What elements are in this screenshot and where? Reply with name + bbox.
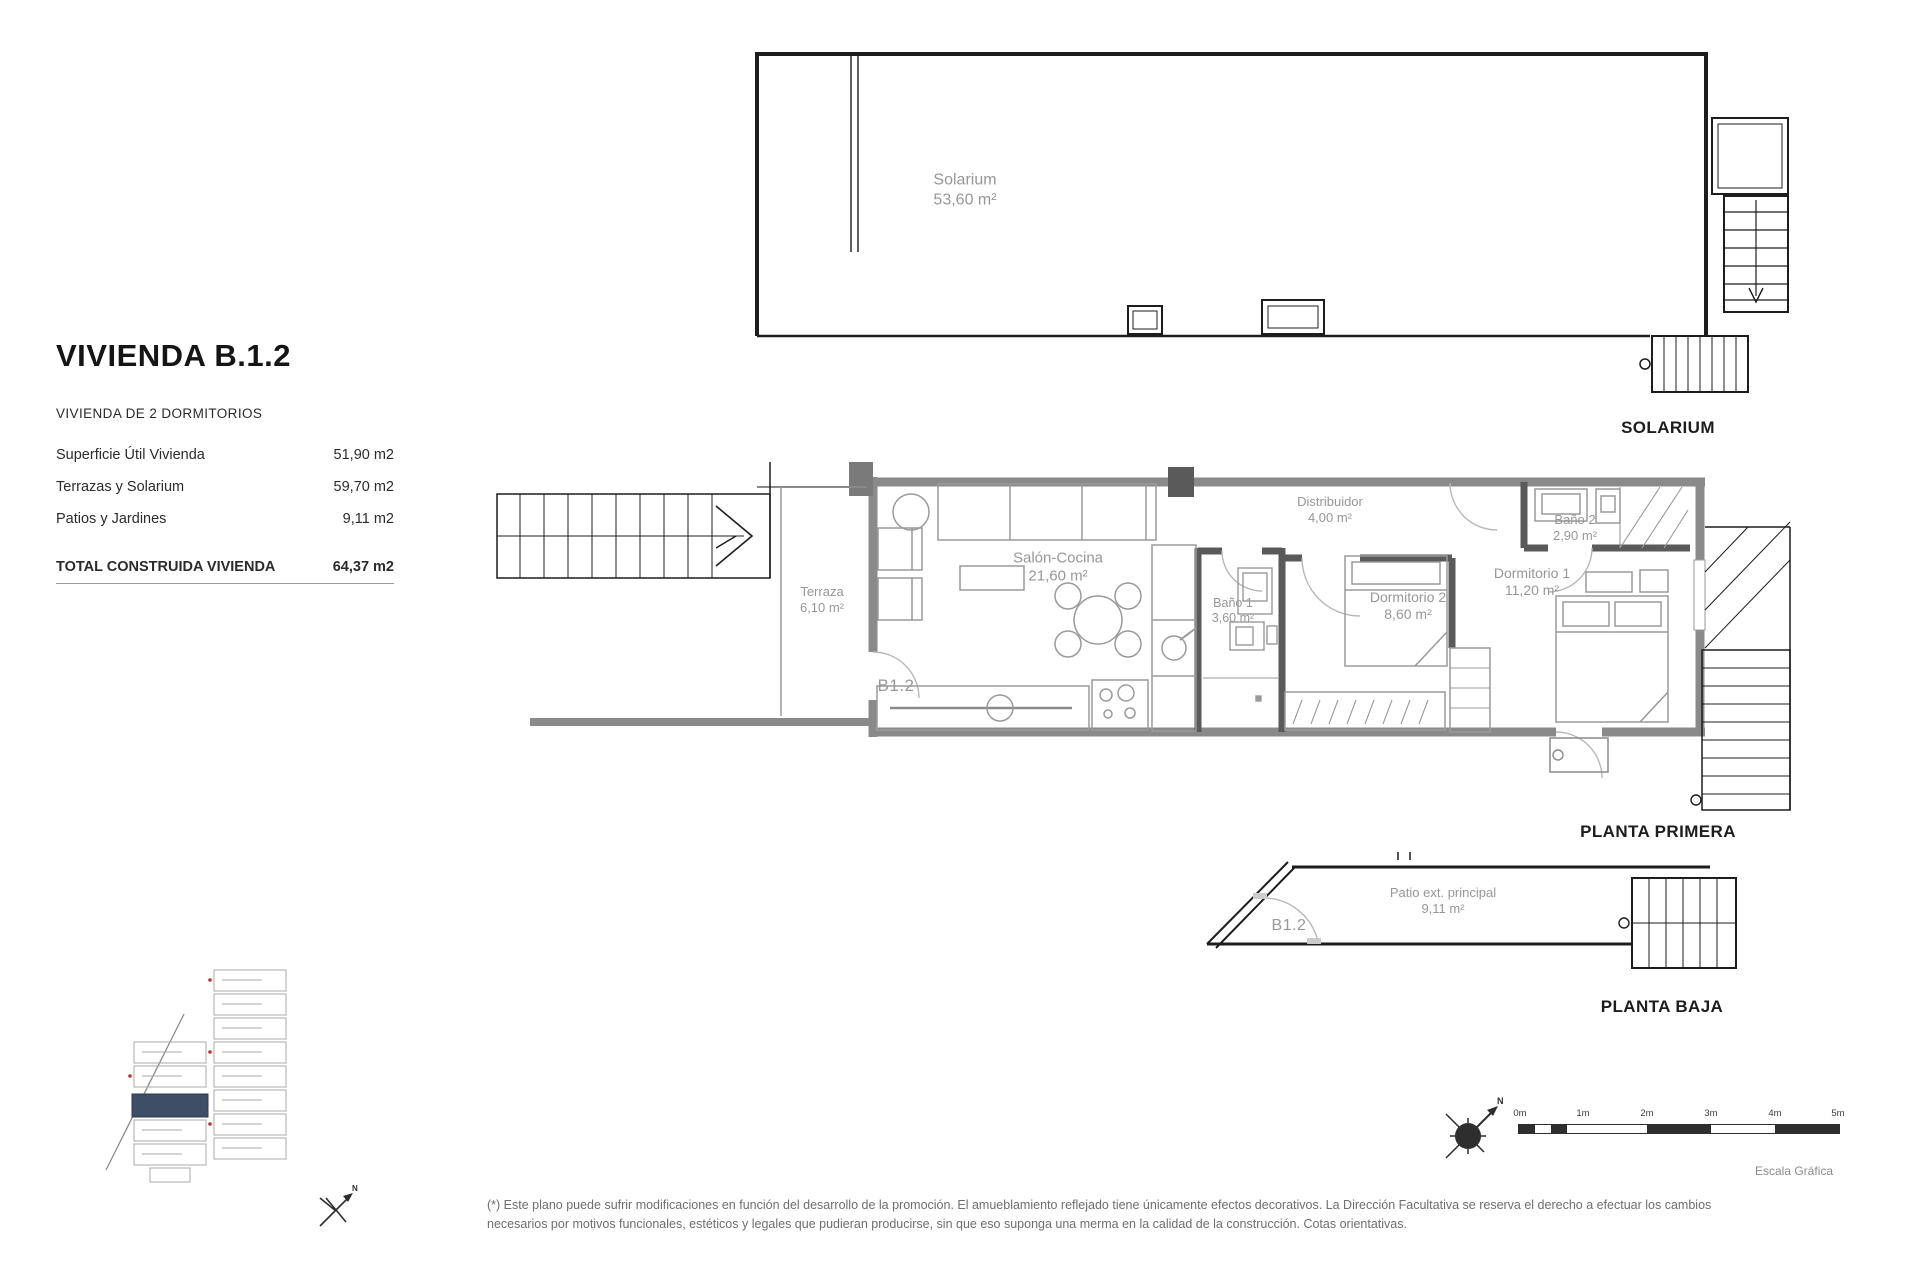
areas-table: Superficie Útil Vivienda 51,90 m2 Terraz… (56, 447, 394, 584)
scale-bar (1518, 1124, 1840, 1134)
caption-planta-primera: PLANTA PRIMERA (1580, 822, 1736, 842)
page-title: VIVIENDA B.1.2 (56, 338, 394, 374)
total-value: 64,37 m2 (333, 559, 394, 575)
room-label-salon-cocina: Salón-Cocina 21,60 m² (1013, 550, 1103, 587)
unit-code-first-floor: B1.2 (878, 676, 915, 696)
row-label: Patios y Jardines (56, 511, 166, 527)
scale-tick: 5m (1831, 1108, 1844, 1119)
room-label-dormitorio1: Dormitorio 1 11,20 m² (1494, 565, 1570, 599)
scale-tick: 3m (1704, 1108, 1717, 1119)
scale-tick: 4m (1768, 1108, 1781, 1119)
disclaimer-text: (*) Este plano puede sufrir modificacion… (487, 1196, 1739, 1235)
solarium-plan-linework (755, 52, 1788, 392)
room-label-distribuidor: Distribuidor 4,00 m² (1297, 494, 1363, 526)
row-label: Terrazas y Solarium (56, 479, 184, 495)
total-label: TOTAL CONSTRUIDA VIVIENDA (56, 559, 275, 575)
row-label: Superficie Útil Vivienda (56, 447, 205, 463)
unit-code-ground-floor: B1.2 (1272, 917, 1307, 935)
scale-caption: Escala Gráfica (1755, 1164, 1833, 1178)
table-row: Terrazas y Solarium 59,70 m2 (56, 479, 394, 511)
room-label-bano2: Baño 2 2,90 m² (1553, 512, 1597, 544)
north-arrow-icon (320, 1193, 353, 1226)
row-value: 51,90 m2 (334, 447, 394, 463)
room-label-bano1: Baño 1 3,60 m² (1212, 596, 1254, 627)
scale-tick: 2m (1640, 1108, 1653, 1119)
title-block: VIVIENDA B.1.2 VIVIENDA DE 2 DORMITORIOS… (56, 338, 394, 584)
scale-tick: 0m (1513, 1108, 1526, 1119)
room-label-terraza: Terraza 6,10 m² (800, 584, 844, 616)
row-value: 59,70 m2 (334, 479, 394, 495)
room-label-patio: Patio ext. principal 9,11 m² (1390, 885, 1496, 917)
compass-icon (1446, 1106, 1498, 1158)
highlighted-unit (132, 1094, 208, 1117)
room-label-dormitorio2: Dormitorio 2 8,60 m² (1370, 589, 1446, 623)
scale-tick: 1m (1576, 1108, 1589, 1119)
table-row: Superficie Útil Vivienda 51,90 m2 (56, 447, 394, 479)
caption-solarium: SOLARIUM (1621, 418, 1715, 438)
table-total-row: TOTAL CONSTRUIDA VIVIENDA 64,37 m2 (56, 559, 394, 584)
room-label-solarium: Solarium 53,60 m² (933, 170, 996, 209)
graphic-scale: 0m 1m 2m 3m 4m 5m (1518, 1108, 1844, 1156)
site-plan-minimap (106, 970, 286, 1182)
page-subtitle: VIVIENDA DE 2 DORMITORIOS (56, 406, 394, 421)
compass-north-label: N (1497, 1096, 1504, 1106)
row-value: 9,11 m2 (343, 511, 394, 527)
caption-planta-baja: PLANTA BAJA (1601, 997, 1723, 1017)
floor-plan-sheet: VIVIENDA B.1.2 VIVIENDA DE 2 DORMITORIOS… (0, 0, 1920, 1280)
table-row: Patios y Jardines 9,11 m2 (56, 511, 394, 543)
compass-north-label: N (352, 1184, 358, 1193)
